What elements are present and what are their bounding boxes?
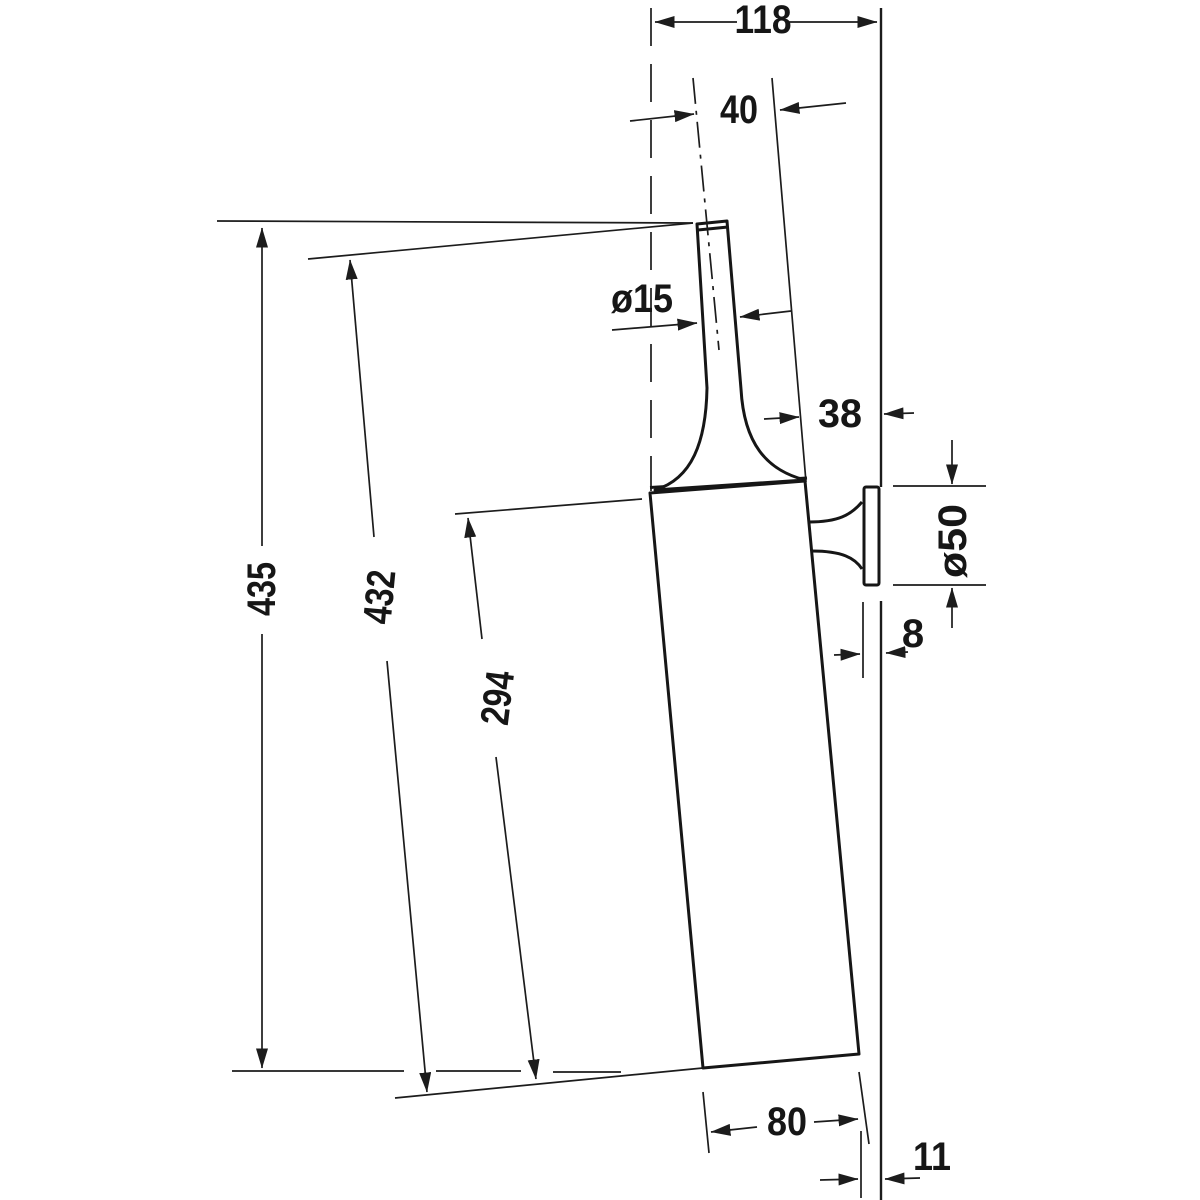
dim-label-container-width: 80 [767,1100,807,1144]
ext-line-container-rim [455,499,642,514]
mount-neck-top [809,502,862,522]
dim-432-bottom-arrow [387,661,427,1092]
dim-o15-left-arrow [612,323,697,330]
technical-drawing-page: 118 40 ø15 38 ø50 8 435 432 294 80 11 [0,0,1200,1200]
dim-label-bottom-to-wall: 11 [913,1135,951,1179]
dim-label-brush-length: 432 [356,568,405,626]
ext-line-body-front [772,78,806,482]
dim-label-body-to-wall: 38 [818,392,862,436]
brush-container [650,481,859,1068]
ext-line-handle-top-slanted [308,223,693,259]
dim-80-left-arrow [711,1127,757,1132]
dim-label-total-depth: 118 [735,0,792,42]
dim-label-rosette-diameter: ø50 [931,504,975,578]
dim-label-handle-diameter: ø15 [611,277,673,321]
product-outline [650,78,879,1068]
ext-line-top-horizontal [217,221,693,223]
dim-label-container-length: 294 [473,668,523,728]
wall-mount-plate [864,487,879,585]
dim-8-left-arrow [834,654,860,655]
mount-neck-bottom [812,551,862,569]
ext-line-bottom-slanted [395,1068,703,1098]
dim-o15-right-arrow [740,311,791,317]
dim-38-left-arrow [764,417,799,419]
dimension-labels: 118 40 ø15 38 ø50 8 435 432 294 80 11 [240,0,975,1179]
dim-80-right-arrow [814,1119,858,1122]
dim-label-handle-axis-to-front: 40 [720,88,758,132]
ext-line-bottom-horizontal [232,1071,621,1072]
dim-294-top-arrow [468,518,482,639]
dim-432-top-arrow [350,260,374,537]
dim-11-left-arrow [820,1179,858,1180]
dimension-drawing: 118 40 ø15 38 ø50 8 435 432 294 80 11 [0,0,1200,1200]
dim-38-right-arrow [884,413,914,414]
dim-label-total-height: 435 [240,562,284,616]
ext-line-container-left-edge [703,1092,709,1153]
dim-40-left-arrow [630,114,694,121]
extension-lines [217,8,986,1198]
dim-label-rosette-depth: 8 [902,612,924,656]
dim-294-bottom-arrow [496,757,536,1079]
dim-40-right-arrow [780,103,846,110]
brush-handle [655,221,805,490]
